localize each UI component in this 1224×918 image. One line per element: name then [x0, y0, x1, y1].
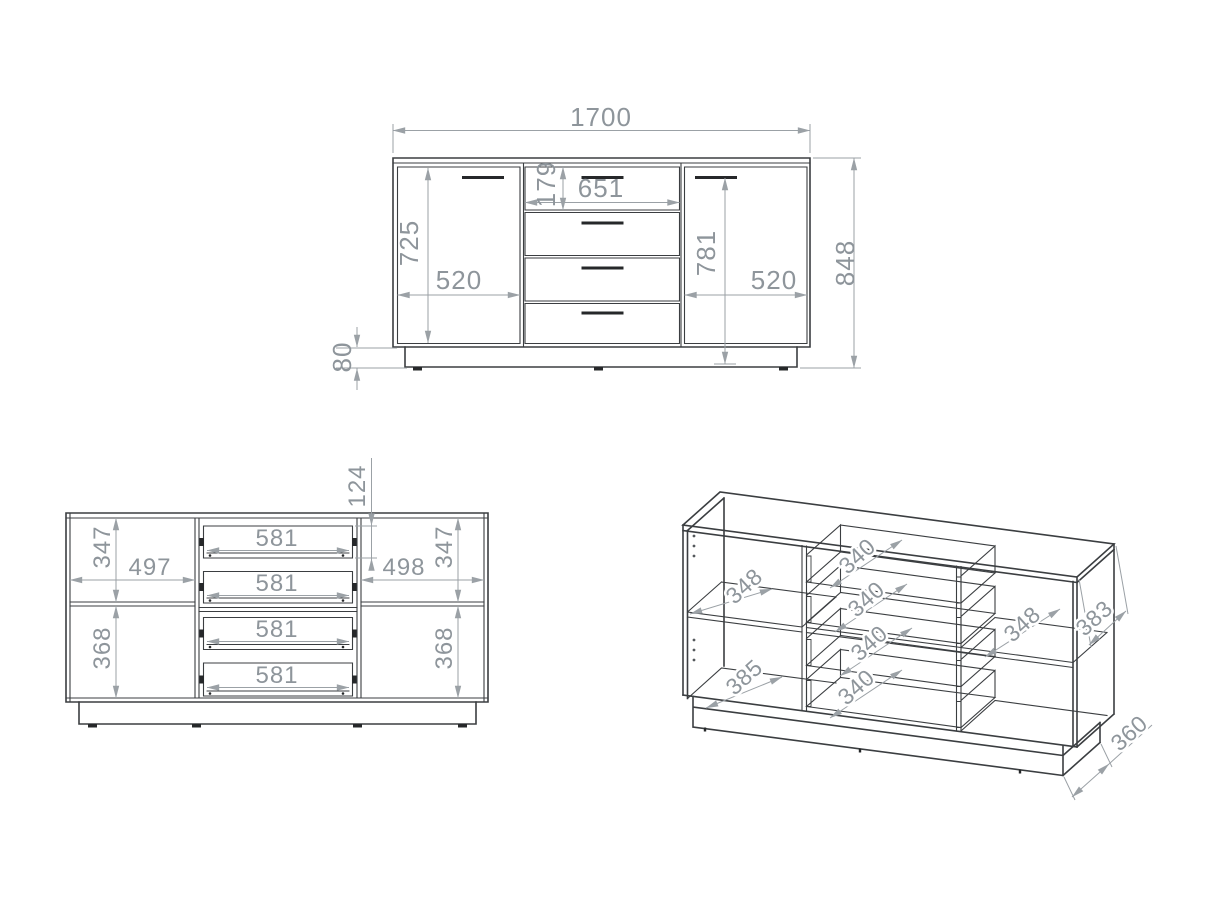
- dim-right-width: 498: [382, 554, 425, 581]
- dim-drawer-depth-2: 340: [842, 576, 889, 622]
- plinth-outline: [79, 702, 476, 724]
- technical-drawing: 1700 848 725 179 651 781 520 520 80: [0, 0, 1224, 918]
- dim-drawer-box-height: 124: [344, 464, 371, 507]
- perspective-view: 348 385 340 340 340 340 348 383 360: [683, 492, 1153, 800]
- dim-drawer-depth-4: 340: [832, 664, 879, 710]
- dim-drawer-width-2: 581: [255, 570, 298, 597]
- drawing-page: 1700 848 725 179 651 781 520 520 80: [0, 0, 1224, 918]
- dim-left-bottom-depth: 385: [720, 654, 767, 700]
- dim-line-plinth-depth: [1072, 764, 1109, 797]
- dim-right-door-width: 520: [751, 265, 797, 295]
- bottom-front-edge: [683, 695, 1077, 747]
- dim-drawer-depth-3: 340: [845, 620, 892, 666]
- dim-drawer-width-1: 581: [255, 525, 298, 552]
- dim-left-door-height: 725: [394, 220, 424, 266]
- dim-drawer-section-width: 651: [578, 173, 624, 203]
- drawer-box-2: [807, 566, 996, 644]
- dim-right-door-height: 781: [691, 230, 721, 276]
- dim-right-shelf-depth: 348: [998, 601, 1045, 647]
- plinth-outline: [693, 697, 1100, 776]
- shelf-pin-holes: [693, 535, 696, 662]
- dim-total-width: 1700: [570, 102, 632, 132]
- dim-left-bottom-height: 368: [89, 626, 116, 669]
- internal-front-view: 347 497 368 581 581 581 581 124 498 347 …: [66, 458, 488, 728]
- dim-total-height: 848: [830, 240, 860, 286]
- dim-drawer-width-4: 581: [255, 662, 298, 689]
- dim-right-top-height: 347: [431, 525, 458, 568]
- dim-left-width: 497: [128, 554, 171, 581]
- dim-top-drawer-height: 179: [531, 161, 561, 207]
- dim-plinth-height: 80: [327, 342, 357, 373]
- drawer-box-1: [807, 525, 996, 603]
- dim-plinth-depth: 360: [1105, 710, 1152, 756]
- drawer-box-3: [807, 609, 996, 687]
- dim-right-bottom-height: 368: [431, 626, 458, 669]
- dim-left-door-width: 520: [436, 265, 482, 295]
- plinth-outline: [405, 347, 797, 367]
- front-elevation-view: 1700 848 725 179 651 781 520 520 80: [327, 102, 861, 390]
- dim-drawer-width-3: 581: [255, 616, 298, 643]
- dim-left-top-height: 347: [89, 525, 116, 568]
